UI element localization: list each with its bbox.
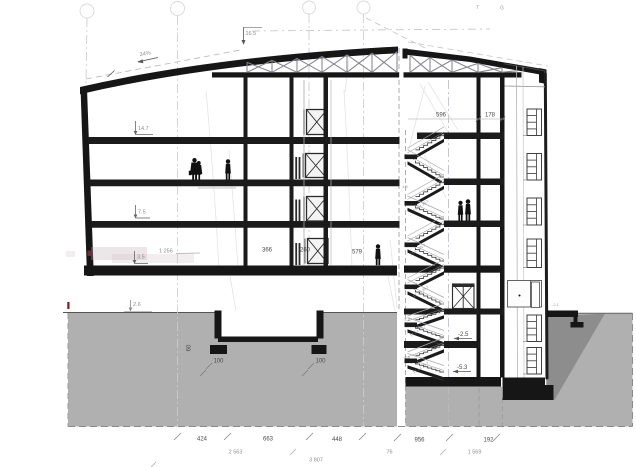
svg-text:2.6: 2.6 [133,302,141,308]
svg-text:956: 956 [414,438,425,444]
svg-text:7: 7 [476,5,479,11]
svg-text:-3.6: -3.6 [403,355,411,360]
svg-text:596: 596 [436,113,447,119]
svg-text:-2.5: -2.5 [458,332,469,338]
svg-text:579: 579 [352,250,363,256]
svg-text:192: 192 [483,438,494,444]
svg-text:-2.1: -2.1 [552,302,560,307]
svg-text:1.9: 1.9 [402,184,408,189]
svg-text:1 569: 1 569 [468,450,482,456]
svg-text:3 807: 3 807 [309,458,323,464]
svg-text:60: 60 [187,344,193,351]
svg-text:366: 366 [262,248,273,254]
svg-text:663: 663 [263,437,274,443]
svg-text:2 563: 2 563 [229,450,243,456]
svg-text:7.5: 7.5 [138,210,146,216]
svg-text:-5.3: -5.3 [457,365,468,371]
svg-text:1 256: 1 256 [159,249,173,255]
svg-text:14.7: 14.7 [138,126,149,132]
svg-text:260: 260 [300,248,311,254]
svg-text:100: 100 [315,359,326,365]
svg-text:16.5: 16.5 [246,31,257,37]
svg-text:100: 100 [213,359,224,365]
svg-text:76: 76 [386,450,392,456]
svg-text:178: 178 [485,113,496,119]
svg-text:G: G [500,6,504,12]
svg-text:3.5: 3.5 [137,255,145,261]
svg-text:424: 424 [197,437,208,443]
svg-text:-2.9: -2.9 [403,317,411,322]
svg-text:448: 448 [332,437,343,443]
